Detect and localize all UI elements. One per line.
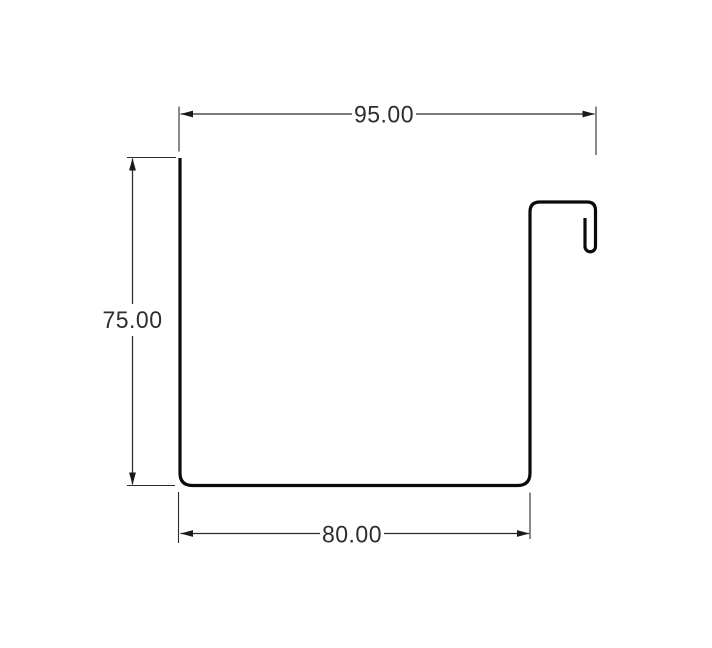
- dimension-label-left-height: 75.00: [103, 307, 163, 334]
- arrowhead-right-icon: [583, 111, 596, 118]
- arrowhead-up-icon: [129, 158, 136, 171]
- profile-drawing-svg: 95.00 75.00 80.00: [0, 0, 712, 648]
- arrowhead-down-icon: [129, 473, 136, 486]
- arrowhead-left-icon: [181, 111, 194, 118]
- dimension-top-width: 95.00: [179, 102, 596, 156]
- dimension-left-height: 75.00: [103, 158, 177, 486]
- technical-drawing-canvas: 95.00 75.00 80.00: [0, 0, 712, 648]
- profile-outline: [180, 158, 596, 486]
- dimension-label-bottom-width: 80.00: [322, 522, 382, 549]
- dimension-bottom-width: 80.00: [179, 492, 531, 549]
- arrowhead-right-icon: [517, 530, 530, 537]
- arrowhead-left-icon: [181, 530, 194, 537]
- dimension-label-top-width: 95.00: [354, 102, 414, 129]
